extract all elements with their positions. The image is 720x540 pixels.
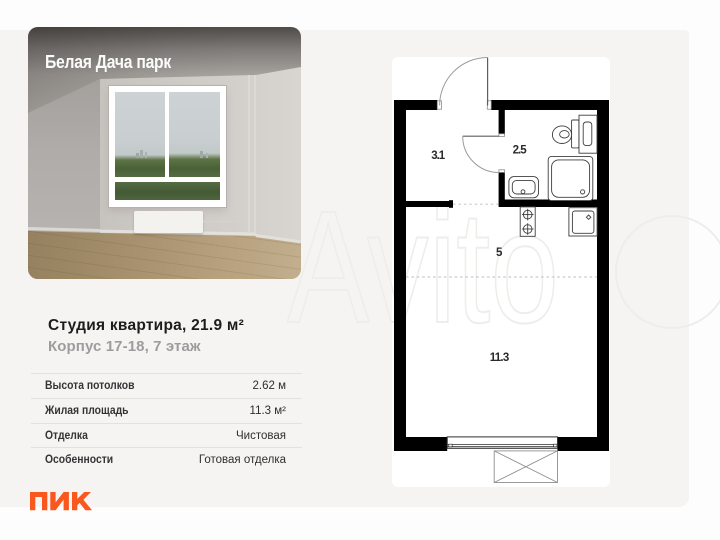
svg-text:5: 5 [496,247,503,259]
svg-text:3.1: 3.1 [431,150,446,162]
svg-text:11.3: 11.3 [490,352,510,364]
svg-text:2.5: 2.5 [513,145,528,157]
